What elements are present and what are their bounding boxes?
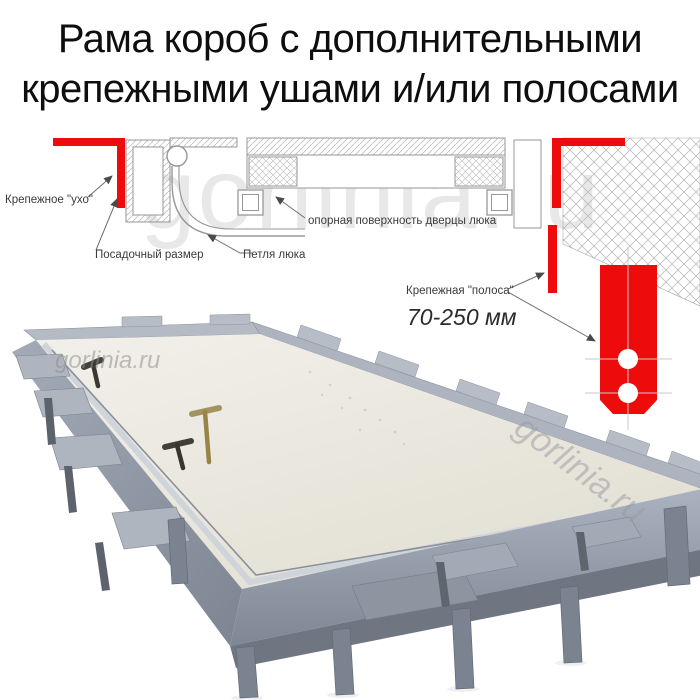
page-title-line-1: Рама короб с дополнительными bbox=[0, 14, 700, 64]
strip-hole-bottom bbox=[618, 383, 638, 403]
label-mounting-strip: Крепежная "полоса" bbox=[406, 285, 514, 297]
technical-drawing: gorlinia.ru bbox=[0, 118, 700, 448]
frame-jamb-left-inner bbox=[133, 147, 163, 215]
label-support-surface: опорная поверхность дверцы люка bbox=[308, 215, 497, 227]
page-title: Рама короб с дополнительными крепежными … bbox=[0, 14, 700, 114]
frame-top-flange bbox=[170, 138, 237, 147]
door-top-sheet bbox=[247, 138, 505, 155]
mounting-ear-right-horizontal bbox=[552, 138, 625, 146]
door-tube-right bbox=[487, 190, 512, 215]
label-strip-range: 70-250 мм bbox=[407, 304, 517, 330]
door-core-block-right bbox=[455, 157, 503, 186]
mounting-ear-right-vertical bbox=[552, 138, 561, 208]
page-title-line-2: крепежными ушами и/или полосами bbox=[0, 64, 700, 114]
frame-jamb-right bbox=[514, 140, 541, 228]
label-hinge: Петля люка bbox=[243, 249, 306, 261]
door-tube-left bbox=[238, 190, 263, 215]
mounting-strip-side-view bbox=[548, 225, 557, 293]
strip-hole-top bbox=[618, 349, 638, 369]
mounting-ear-left-vertical bbox=[117, 138, 125, 208]
door-core-block-left bbox=[249, 157, 297, 186]
label-mounting-ear: Крепежное "ухо" bbox=[5, 194, 93, 206]
hinge-barrel bbox=[167, 146, 187, 166]
label-seat-size: Посадочный размер bbox=[95, 249, 204, 261]
floor-shadows bbox=[231, 660, 587, 700]
mounting-ear-left-horizontal bbox=[53, 138, 125, 146]
